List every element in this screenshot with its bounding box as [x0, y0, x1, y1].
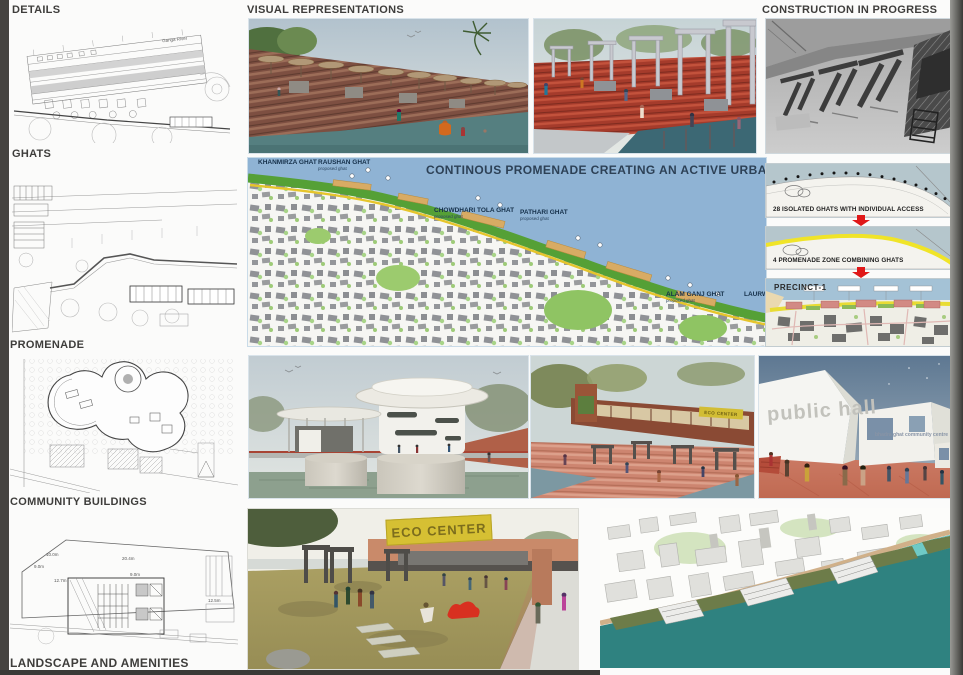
- board-right-edge: [950, 0, 963, 675]
- dim-label: 12.7m: [54, 578, 67, 583]
- render-ghat-steps-frames: [533, 18, 757, 154]
- drawing-community-plan: 10.0m 9.0m 20.4m 12.7m 9.0m 12.5m: [10, 514, 238, 654]
- section-heading-community-buildings: COMMUNITY BUILDINGS: [10, 496, 147, 508]
- ghat-label-raushan: RAUSHAN GHATproposed ghat: [318, 159, 370, 172]
- section-heading-ghats: GHATS: [12, 148, 51, 160]
- render-eco-center-lawn: ECO CENTER: [247, 508, 579, 670]
- dim-label: 9.0m: [34, 564, 44, 569]
- red-arrow-down-icon: [852, 215, 870, 226]
- render-aerial-masterplan: [600, 508, 950, 668]
- eco-center-sign: ECO CENTER: [385, 514, 492, 546]
- section-heading-promenade: PROMENADE: [10, 339, 84, 351]
- diagram-caption-promenade-zones: 4 PROMENADE ZONE COMBINING GHATS: [773, 257, 903, 264]
- map-title: CONTINOUS PROMENADE CREATING AN ACTIVE U…: [426, 163, 767, 177]
- drawing-details-plan: Ganga River: [12, 25, 237, 143]
- map-promenade: CONTINOUS PROMENADE CREATING AN ACTIVE U…: [247, 157, 767, 347]
- diagram-isolated-ghats: 28 ISOLATED GHATS WITH INDIVIDUAL ACCESS: [765, 163, 955, 218]
- diagram-promenade-zones: 4 PROMENADE ZONE COMBINING GHATS: [765, 226, 955, 270]
- render-ghat-steps-parasols: [248, 18, 529, 154]
- ghat-label-alam-ganj: ALAM GANJ GHATproposed ghat: [666, 291, 724, 304]
- red-arrow-down-icon: [852, 267, 870, 278]
- ghat-label-pathari: PATHARI GHATproposed ghat: [520, 209, 568, 222]
- presentation-board: DETAILS GHATS PROMENADE COMMUNITY BUILDI…: [0, 0, 963, 675]
- diagram-caption-precinct: PRECINCT-1: [774, 283, 827, 292]
- render-eco-center-ghat: ECO CENTER: [530, 355, 755, 499]
- dim-label: 20.4m: [122, 556, 135, 561]
- ghat-label-chowdhari-tola: CHOWDHARI TOLA GHATproposed ghat: [434, 207, 514, 220]
- board-left-edge: [0, 0, 9, 675]
- drawing-ghats-plan: [12, 168, 237, 336]
- dim-label: 9.0m: [130, 572, 140, 577]
- ghat-label-khanmirza: KHANMIRZA GHAT: [258, 159, 317, 166]
- diagram-caption-isolated: 28 ISOLATED GHATS WITH INDIVIDUAL ACCESS: [773, 206, 924, 213]
- section-heading-visual-representations: VISUAL REPRESENTATIONS: [247, 4, 404, 16]
- photo-construction: [765, 18, 954, 154]
- dim-label: 12.5m: [208, 598, 221, 603]
- render-round-pavilion: [248, 355, 529, 499]
- section-heading-landscape: LANDSCAPE AND AMENITIES: [10, 656, 189, 670]
- drawing-promenade-plan: [10, 357, 238, 493]
- dim-label: 10.0m: [46, 552, 59, 557]
- community-centre-text: bhadra ghat community centre: [875, 432, 948, 438]
- board-bottom-edge: [0, 670, 600, 675]
- diagram-precinct-1: PRECINCT-1: [765, 278, 955, 347]
- section-heading-construction: CONSTRUCTION IN PROGRESS: [762, 4, 937, 16]
- ghat-label-laurwa: LAURWA GHAT: [744, 291, 767, 298]
- render-public-hall: public hall bhadra ghat community centre: [758, 355, 954, 499]
- section-heading-details: DETAILS: [12, 4, 60, 16]
